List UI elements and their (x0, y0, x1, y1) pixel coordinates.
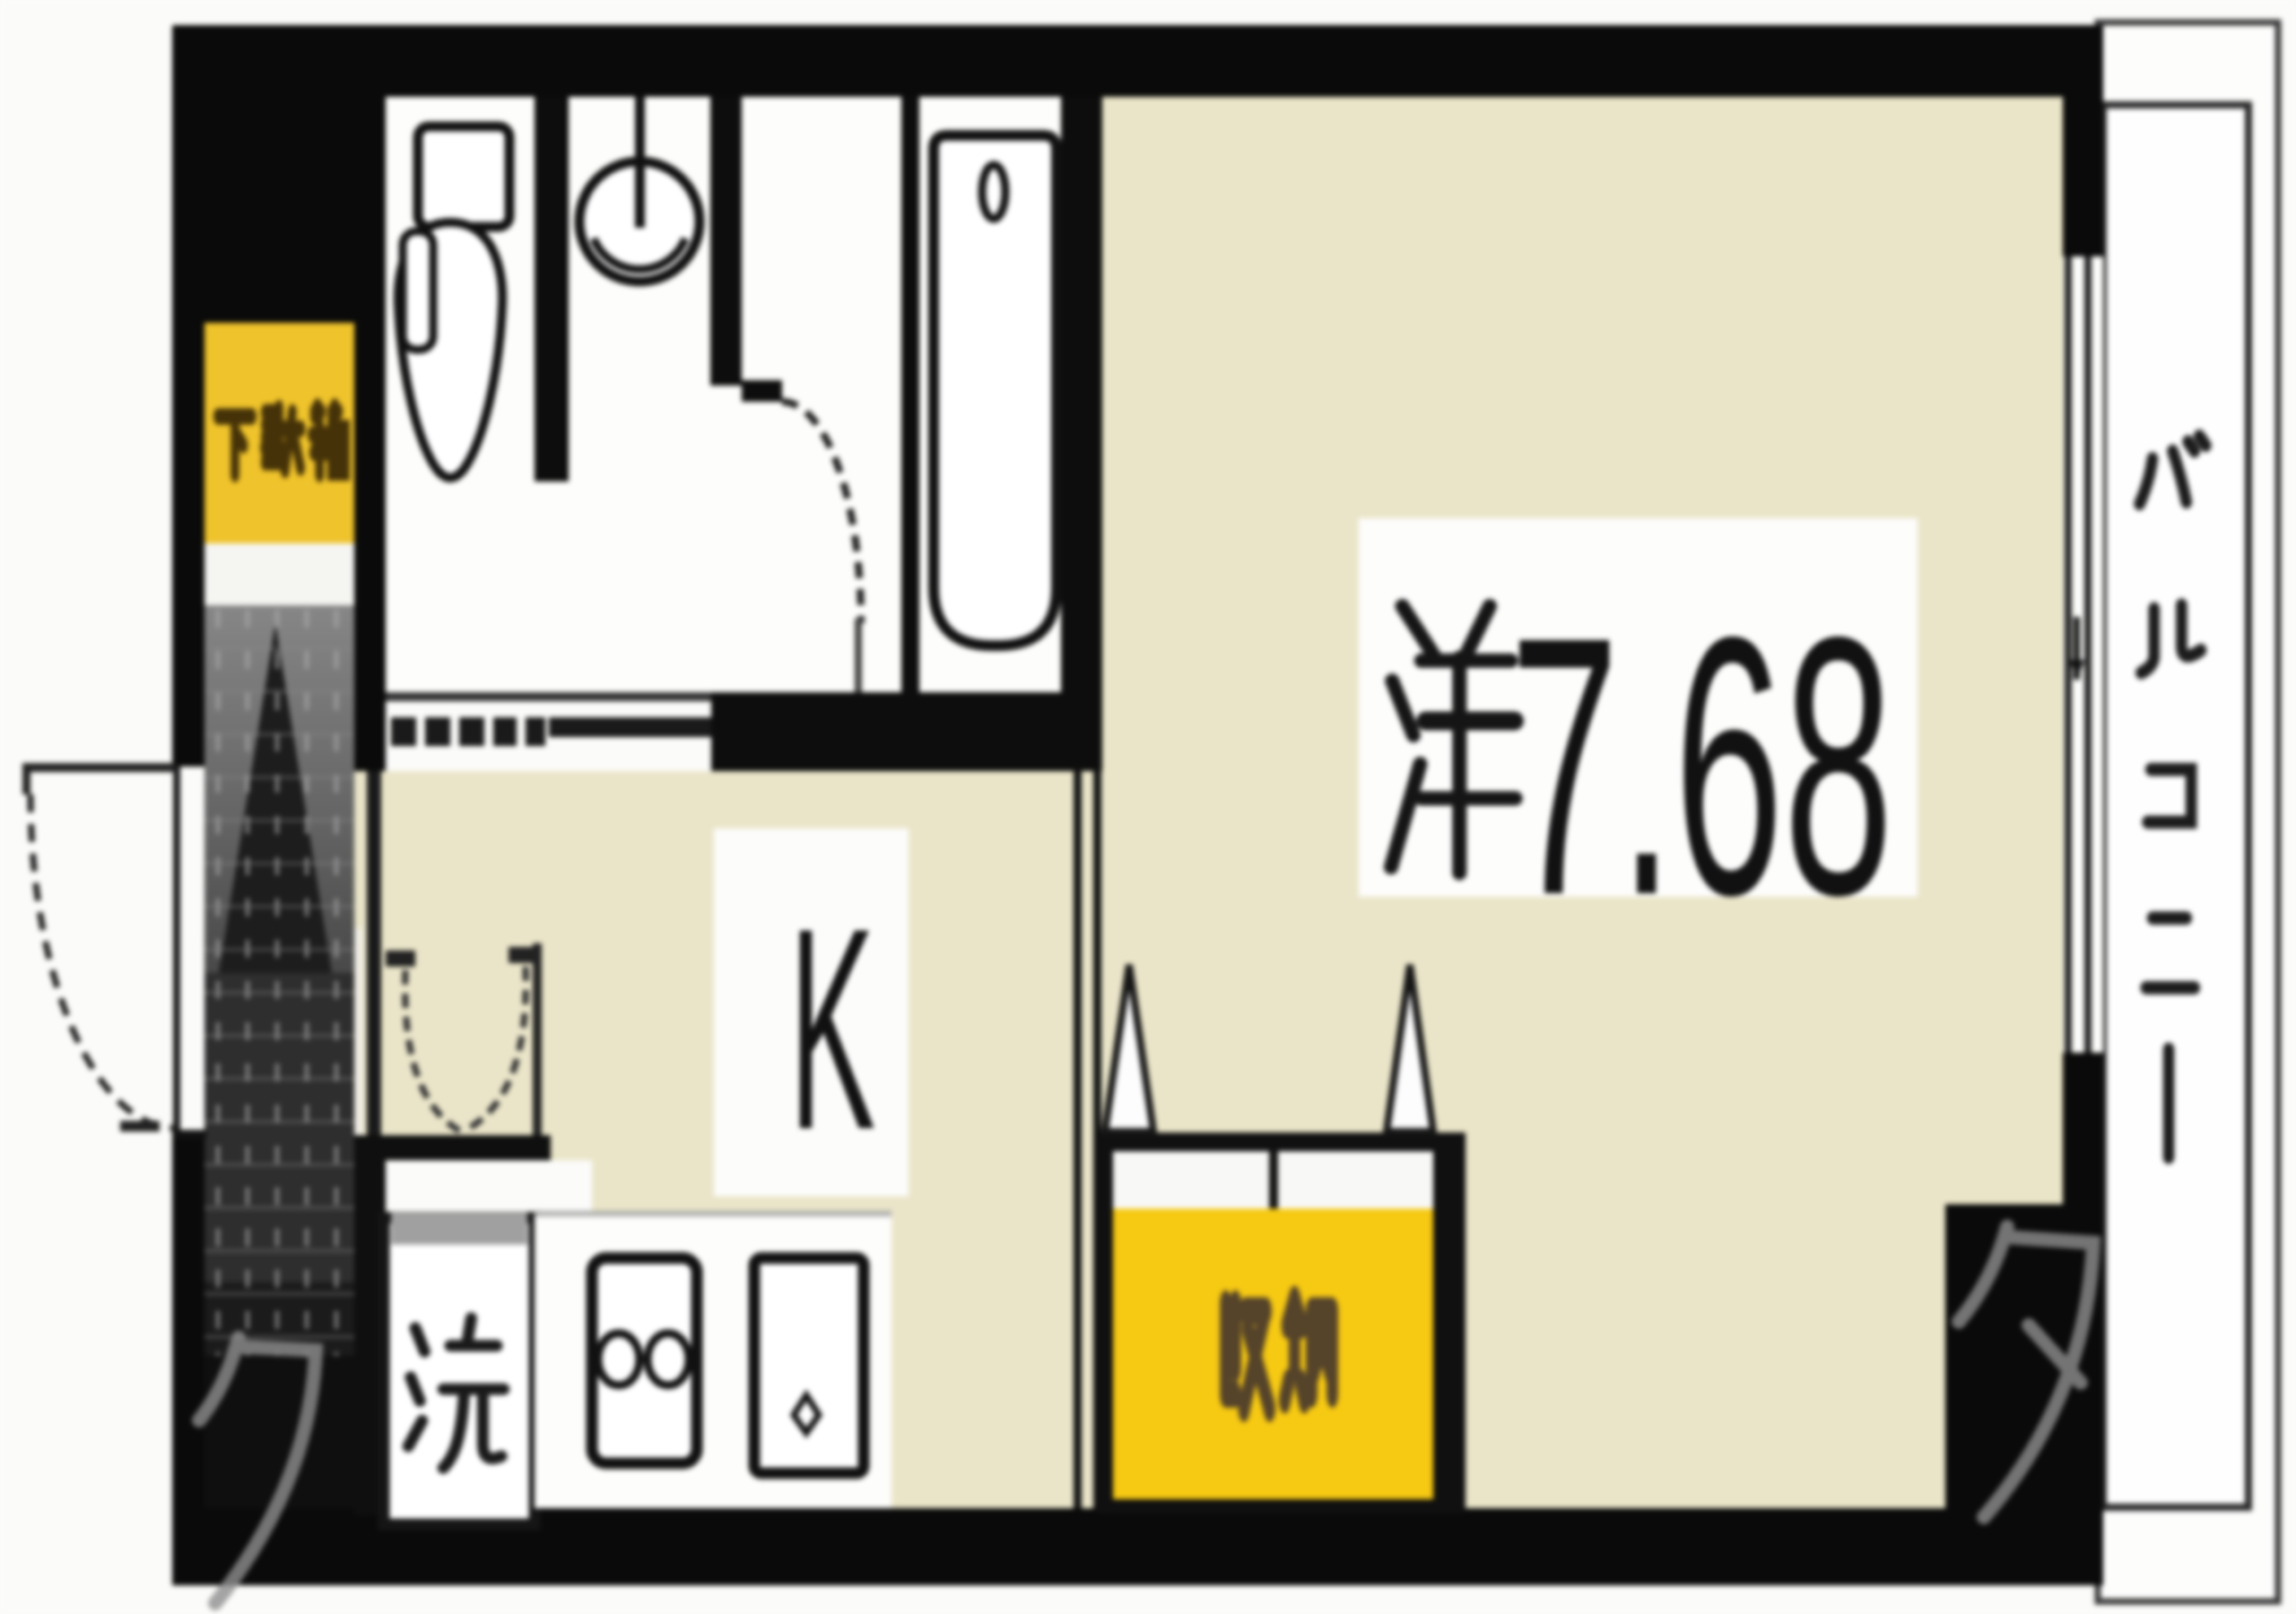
svg-text:K: K (789, 868, 875, 1189)
svg-text:7.68: 7.68 (1509, 560, 1893, 971)
